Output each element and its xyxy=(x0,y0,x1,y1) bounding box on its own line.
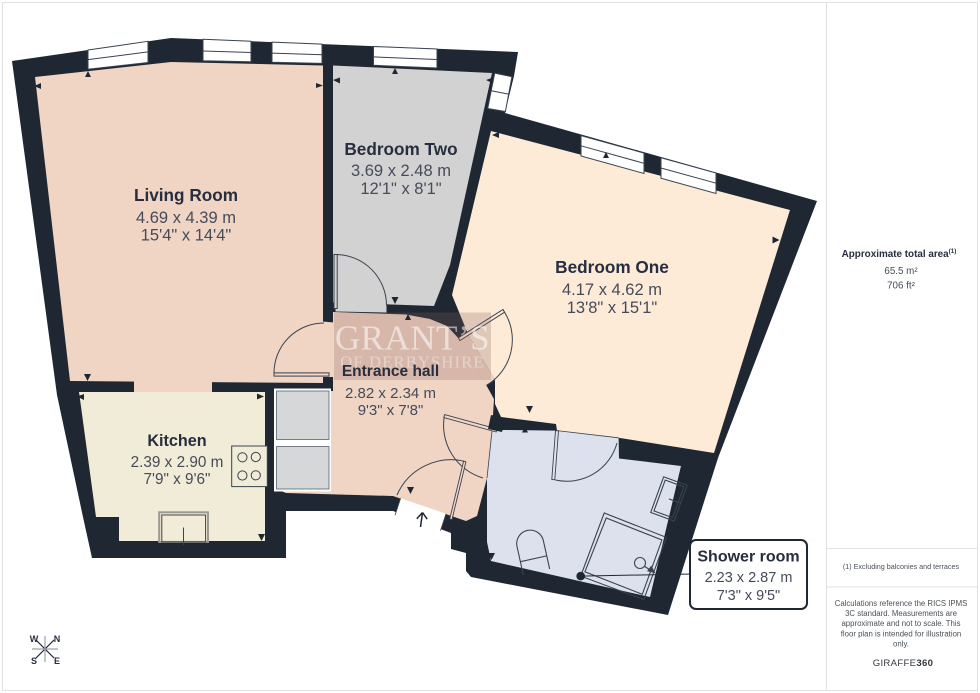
svg-text:Entrance hall: Entrance hall xyxy=(342,363,439,380)
svg-text:7'9" x 9'6": 7'9" x 9'6" xyxy=(144,471,211,488)
svg-text:2.23 x 2.87 m: 2.23 x 2.87 m xyxy=(705,570,793,586)
svg-text:Kitchen: Kitchen xyxy=(147,432,206,450)
svg-text:7'3" x 9'5": 7'3" x 9'5" xyxy=(717,588,780,604)
svg-text:E: E xyxy=(54,656,60,666)
svg-text:706 ft²: 706 ft² xyxy=(887,281,916,292)
svg-text:(1) Excluding balconies and te: (1) Excluding balconies and terraces xyxy=(843,562,960,571)
svg-text:floor plan is intended for ill: floor plan is intended for illustration xyxy=(841,630,962,639)
svg-text:Shower room: Shower room xyxy=(697,549,799,566)
svg-text:3.69 x 2.48 m: 3.69 x 2.48 m xyxy=(351,162,451,180)
svg-text:Bedroom Two: Bedroom Two xyxy=(344,139,457,159)
svg-text:S: S xyxy=(31,656,37,666)
svg-text:N: N xyxy=(54,634,61,644)
svg-text:4.17 x 4.62 m: 4.17 x 4.62 m xyxy=(562,281,662,299)
svg-text:approximate and not to scale.: approximate and not to scale. This xyxy=(841,619,960,628)
svg-text:Living Room: Living Room xyxy=(134,185,238,205)
svg-text:Approximate total area(1): Approximate total area(1) xyxy=(842,248,957,261)
svg-text:13'8" x 15'1": 13'8" x 15'1" xyxy=(567,299,658,317)
svg-text:12'1" x 8'1": 12'1" x 8'1" xyxy=(360,180,441,198)
svg-text:2.39 x 2.90 m: 2.39 x 2.90 m xyxy=(131,454,224,471)
svg-text:only.: only. xyxy=(893,640,909,649)
svg-text:Calculations reference the RIC: Calculations reference the RICS IPMS xyxy=(835,599,968,608)
svg-text:4.69 x 4.39 m: 4.69 x 4.39 m xyxy=(136,209,236,227)
svg-text:15'4" x 14'4": 15'4" x 14'4" xyxy=(141,227,232,245)
svg-text:65.5 m²: 65.5 m² xyxy=(884,266,918,277)
svg-text:GIRAFFE360: GIRAFFE360 xyxy=(873,658,934,669)
svg-text:9'3" x 7'8": 9'3" x 7'8" xyxy=(358,402,424,419)
svg-text:W: W xyxy=(30,634,39,644)
svg-text:2.82 x 2.34 m: 2.82 x 2.34 m xyxy=(345,385,436,402)
svg-text:3C standard. Measurements are: 3C standard. Measurements are xyxy=(845,609,957,618)
svg-text:Bedroom One: Bedroom One xyxy=(555,257,669,277)
